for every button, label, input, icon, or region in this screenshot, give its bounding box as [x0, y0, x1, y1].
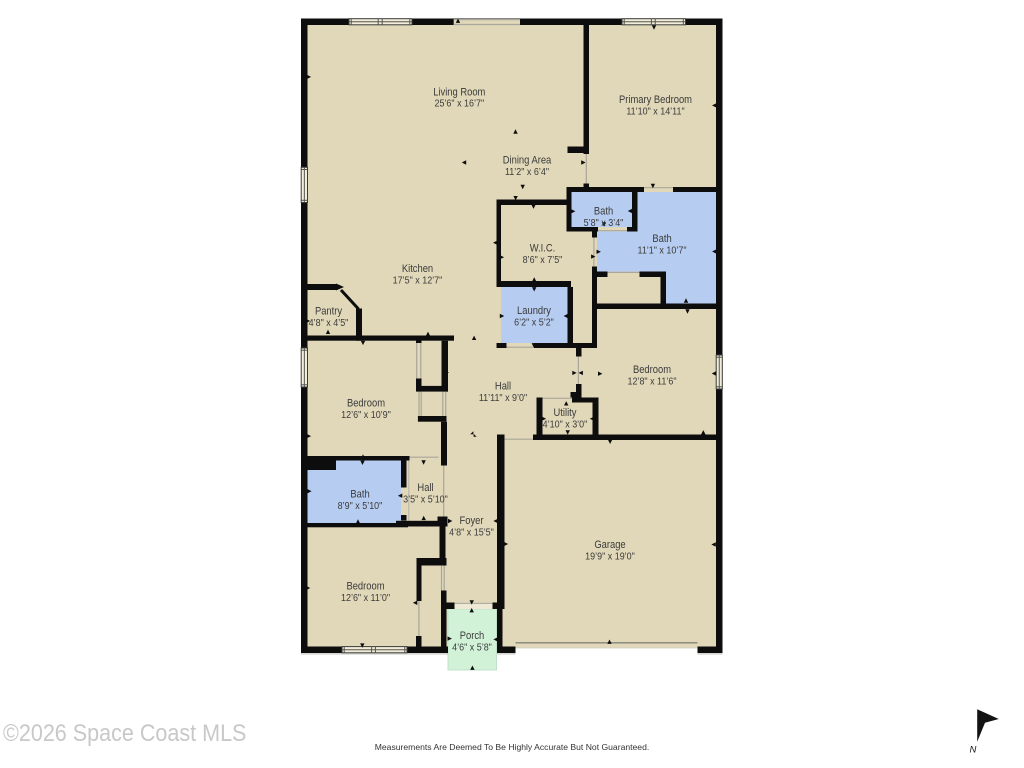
svg-text:19’9" x 19’0": 19’9" x 19’0"	[585, 551, 635, 563]
svg-text:12’6" x 11’0": 12’6" x 11’0"	[341, 592, 391, 604]
svg-text:Hall: Hall	[495, 381, 511, 393]
svg-text:Laundry: Laundry	[517, 305, 552, 317]
svg-text:N: N	[970, 745, 977, 756]
svg-text:Utility: Utility	[554, 407, 578, 419]
svg-text:Bedroom: Bedroom	[347, 398, 385, 410]
svg-text:©2026 Space Coast MLS: ©2026 Space Coast MLS	[3, 719, 246, 747]
svg-text:Foyer: Foyer	[460, 515, 485, 527]
svg-text:Bedroom: Bedroom	[633, 364, 671, 376]
svg-text:25’6" x 16’7": 25’6" x 16’7"	[434, 98, 484, 110]
svg-text:Bath: Bath	[652, 233, 671, 245]
svg-text:Kitchen: Kitchen	[402, 263, 433, 275]
svg-text:11’11" x 9’0": 11’11" x 9’0"	[479, 392, 528, 404]
svg-text:Pantry: Pantry	[315, 306, 343, 318]
svg-text:Measurements Are Deemed To Be: Measurements Are Deemed To Be Highly Acc…	[375, 742, 650, 752]
svg-text:Porch: Porch	[460, 630, 485, 642]
svg-text:8’9" x 5’10": 8’9" x 5’10"	[338, 500, 383, 512]
svg-text:4’8" x 15’5": 4’8" x 15’5"	[449, 527, 494, 539]
svg-text:3’5" x 5’10": 3’5" x 5’10"	[403, 494, 448, 506]
svg-text:W.I.C.: W.I.C.	[530, 243, 556, 255]
svg-text:5’8" x 3’4": 5’8" x 3’4"	[584, 217, 624, 229]
svg-text:17’5" x 12’7": 17’5" x 12’7"	[393, 275, 443, 287]
svg-text:Primary Bedroom: Primary Bedroom	[619, 94, 692, 106]
svg-text:8’6" x 7’5": 8’6" x 7’5"	[523, 254, 563, 266]
svg-text:Garage: Garage	[594, 539, 626, 551]
svg-text:12’6" x 10’9": 12’6" x 10’9"	[341, 409, 391, 421]
svg-text:Bath: Bath	[594, 206, 613, 218]
svg-text:Hall: Hall	[417, 482, 433, 494]
svg-text:11’1" x 10’7": 11’1" x 10’7"	[638, 245, 688, 257]
svg-text:4’10" x 3’0": 4’10" x 3’0"	[543, 419, 588, 431]
svg-text:4’8" x 4’5": 4’8" x 4’5"	[309, 317, 349, 329]
svg-text:4’6" x 5’8": 4’6" x 5’8"	[452, 642, 492, 654]
svg-text:11’2" x 6’4": 11’2" x 6’4"	[505, 166, 550, 178]
svg-text:Bedroom: Bedroom	[346, 581, 384, 593]
svg-text:6’2" x 5’2": 6’2" x 5’2"	[514, 317, 554, 329]
svg-text:Living Room: Living Room	[433, 87, 485, 99]
svg-text:Bath: Bath	[350, 489, 369, 501]
svg-text:11’10" x 14’11": 11’10" x 14’11"	[626, 106, 685, 118]
svg-text:12’8" x 11’6": 12’8" x 11’6"	[628, 376, 678, 388]
svg-text:Dining Area: Dining Area	[503, 155, 552, 167]
